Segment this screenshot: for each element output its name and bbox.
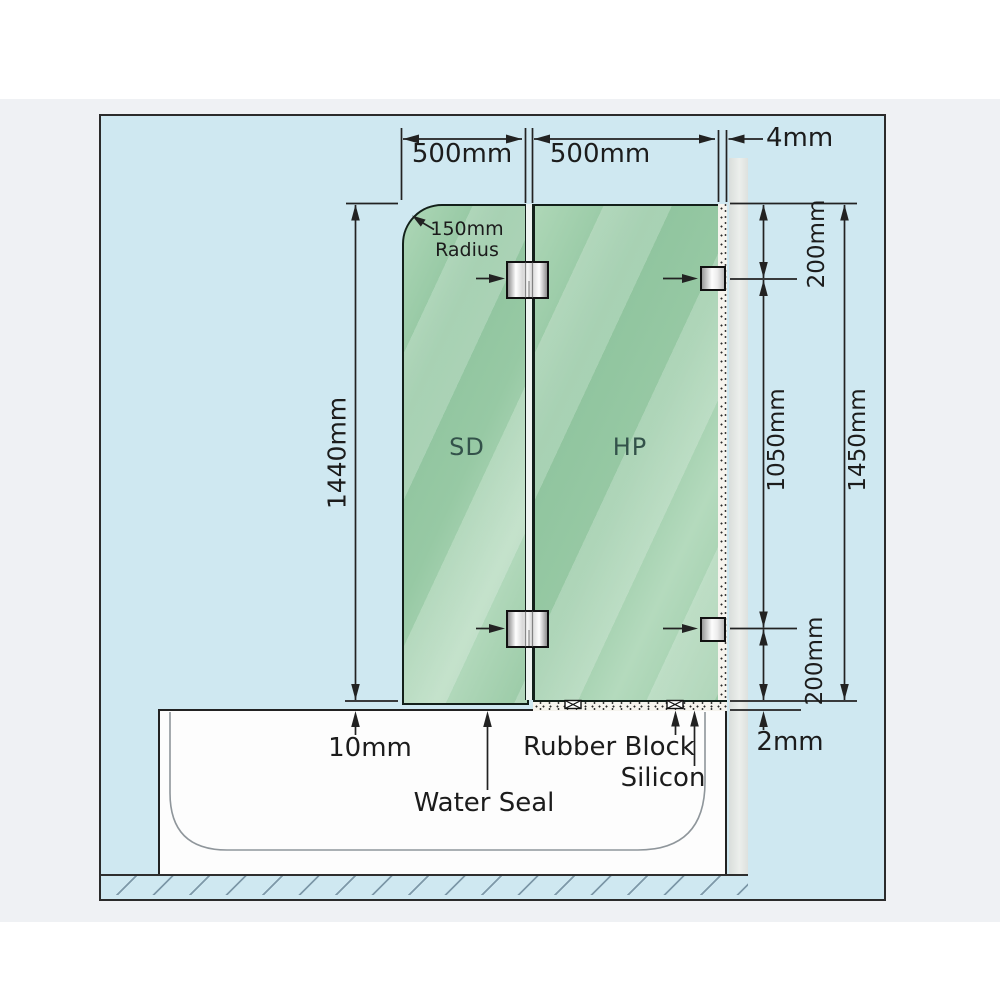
callout-rubber-block: Rubber Block [523, 734, 695, 761]
dim-bracket-span: 1050mm [764, 388, 790, 491]
dim-bracket-bottom-offset: 200mm [802, 617, 828, 706]
screenshot-root: 500mm 500mm 4mm 150mm Radius 1440mm 200m… [0, 0, 1000, 1000]
corner-radius-note: 150mm Radius [430, 219, 503, 261]
dim-bottom-gap: 10mm [328, 735, 412, 762]
wall-section [729, 158, 748, 874]
dim-panel-width-right: 500mm [550, 141, 650, 168]
center-hinge-top [506, 261, 549, 299]
dim-bracket-top-offset: 200mm [804, 200, 830, 289]
dim-panel-width-left: 500mm [412, 141, 512, 168]
silicon-strip-bottom [533, 700, 727, 711]
panel-label-hp: HP [613, 433, 648, 461]
center-hinge-bottom [506, 610, 549, 648]
floor-hatching [101, 874, 748, 895]
wall-bracket-top [700, 266, 726, 291]
callout-water-seal: Water Seal [414, 790, 555, 817]
panel-label-sd: SD [449, 433, 485, 461]
dim-panel-height-left: 1440mm [323, 397, 352, 509]
corner-radius-word: Radius [430, 240, 503, 261]
dim-silicon-bed: 2mm [756, 729, 823, 756]
corner-radius-value: 150mm [430, 219, 503, 240]
dim-wall-gap: 4mm [766, 125, 833, 152]
dim-overall-height: 1450mm [845, 388, 871, 491]
wall-bracket-bottom [700, 617, 726, 642]
callout-silicon: Silicon [621, 765, 706, 792]
